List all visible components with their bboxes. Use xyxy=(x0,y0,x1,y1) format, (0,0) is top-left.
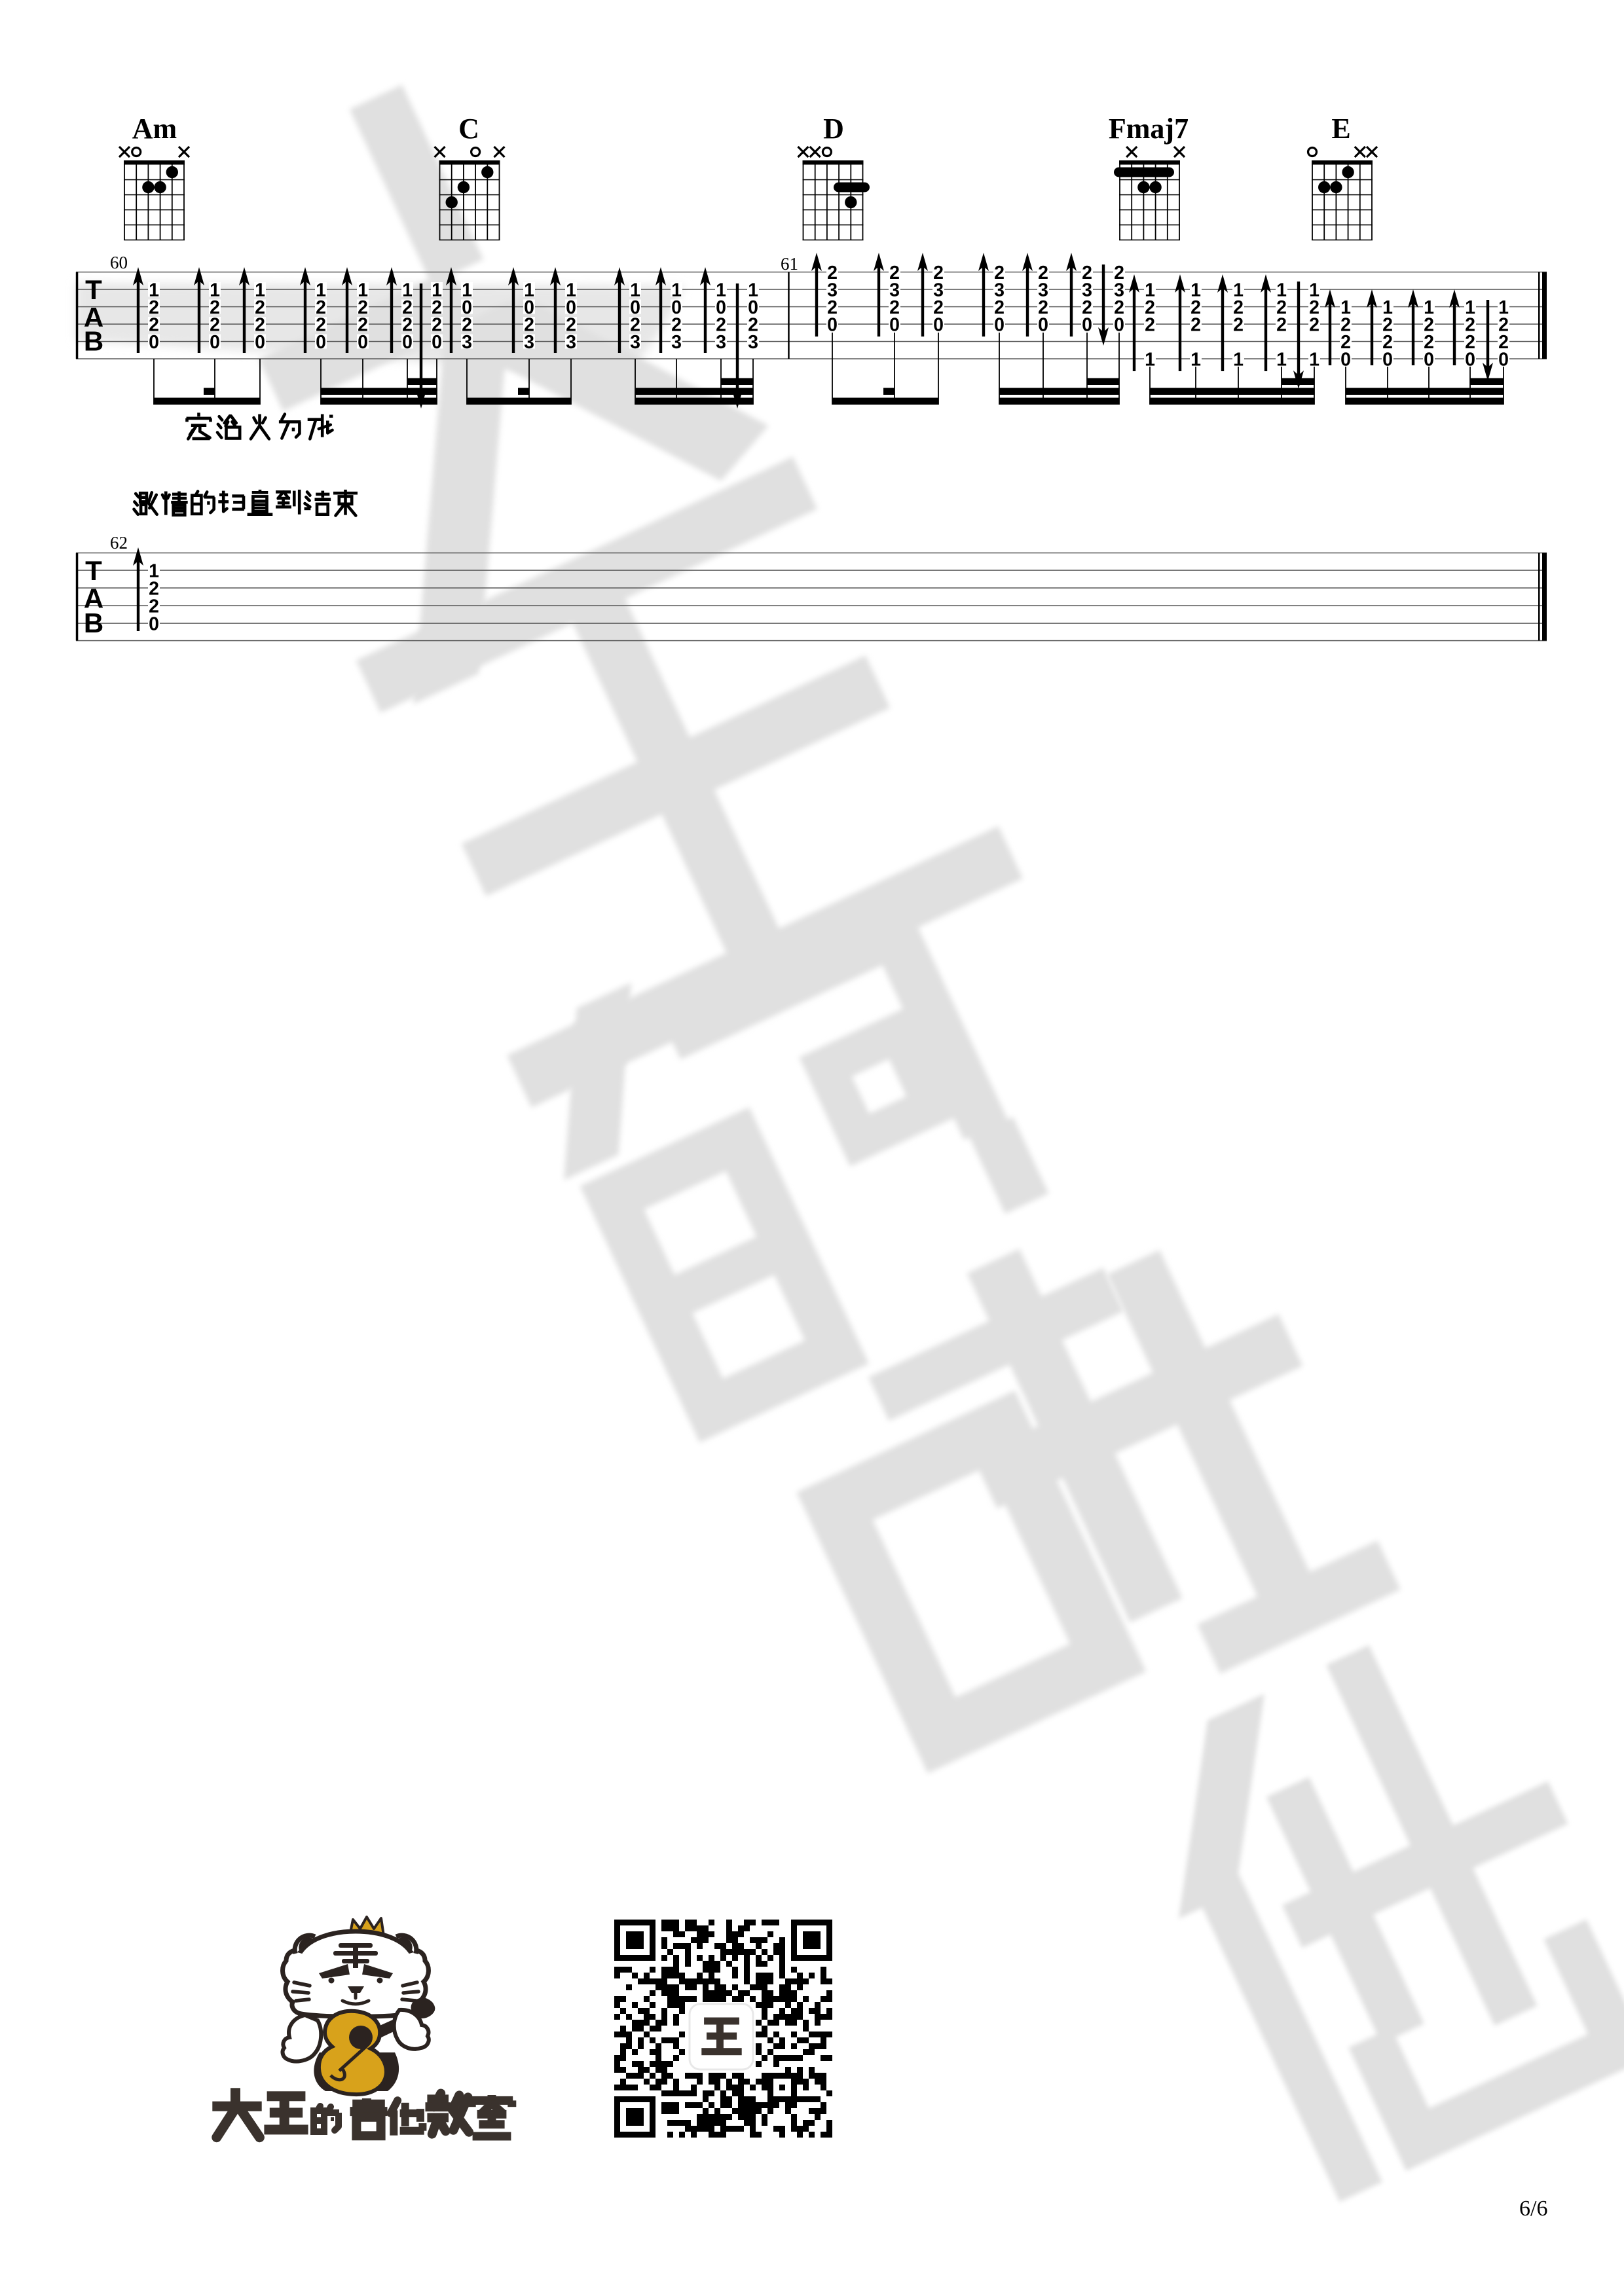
svg-text:T: T xyxy=(85,274,102,305)
svg-text:61: 61 xyxy=(781,254,798,274)
svg-text:B: B xyxy=(84,608,103,638)
svg-text:0: 0 xyxy=(827,314,838,335)
svg-text:2: 2 xyxy=(1276,314,1287,335)
svg-text:0: 0 xyxy=(316,332,326,353)
svg-text:B: B xyxy=(84,326,103,357)
svg-text:3: 3 xyxy=(748,332,758,353)
svg-text:C: C xyxy=(458,113,479,145)
svg-text:Am: Am xyxy=(132,113,177,145)
svg-text:0: 0 xyxy=(1114,314,1124,335)
svg-text:0: 0 xyxy=(994,314,1005,335)
svg-text:0: 0 xyxy=(210,332,220,353)
svg-text:3: 3 xyxy=(716,332,726,353)
svg-text:3: 3 xyxy=(630,332,640,353)
svg-text:2: 2 xyxy=(1190,314,1201,335)
svg-text:3: 3 xyxy=(671,332,682,353)
svg-text:0: 0 xyxy=(402,332,413,353)
svg-text:6/6: 6/6 xyxy=(1519,2196,1547,2221)
svg-text:0: 0 xyxy=(432,332,442,353)
svg-text:60: 60 xyxy=(110,253,128,272)
svg-text:2: 2 xyxy=(1233,314,1244,335)
svg-text:T: T xyxy=(85,555,102,586)
svg-text:0: 0 xyxy=(933,314,944,335)
svg-text:62: 62 xyxy=(110,533,128,553)
svg-text:0: 0 xyxy=(149,613,159,634)
svg-text:3: 3 xyxy=(462,332,472,353)
svg-text:0: 0 xyxy=(889,314,900,335)
svg-text:Fmaj7: Fmaj7 xyxy=(1109,113,1189,145)
svg-text:3: 3 xyxy=(566,332,576,353)
svg-text:E: E xyxy=(1331,113,1350,145)
svg-text:D: D xyxy=(823,113,844,145)
svg-text:0: 0 xyxy=(358,332,368,353)
svg-text:2: 2 xyxy=(1309,314,1319,335)
svg-text:0: 0 xyxy=(1038,314,1048,335)
svg-text:3: 3 xyxy=(524,332,534,353)
svg-text:0: 0 xyxy=(149,332,159,353)
svg-text:0: 0 xyxy=(255,332,265,353)
svg-text:0: 0 xyxy=(1082,314,1092,335)
svg-text:2: 2 xyxy=(1145,314,1155,335)
